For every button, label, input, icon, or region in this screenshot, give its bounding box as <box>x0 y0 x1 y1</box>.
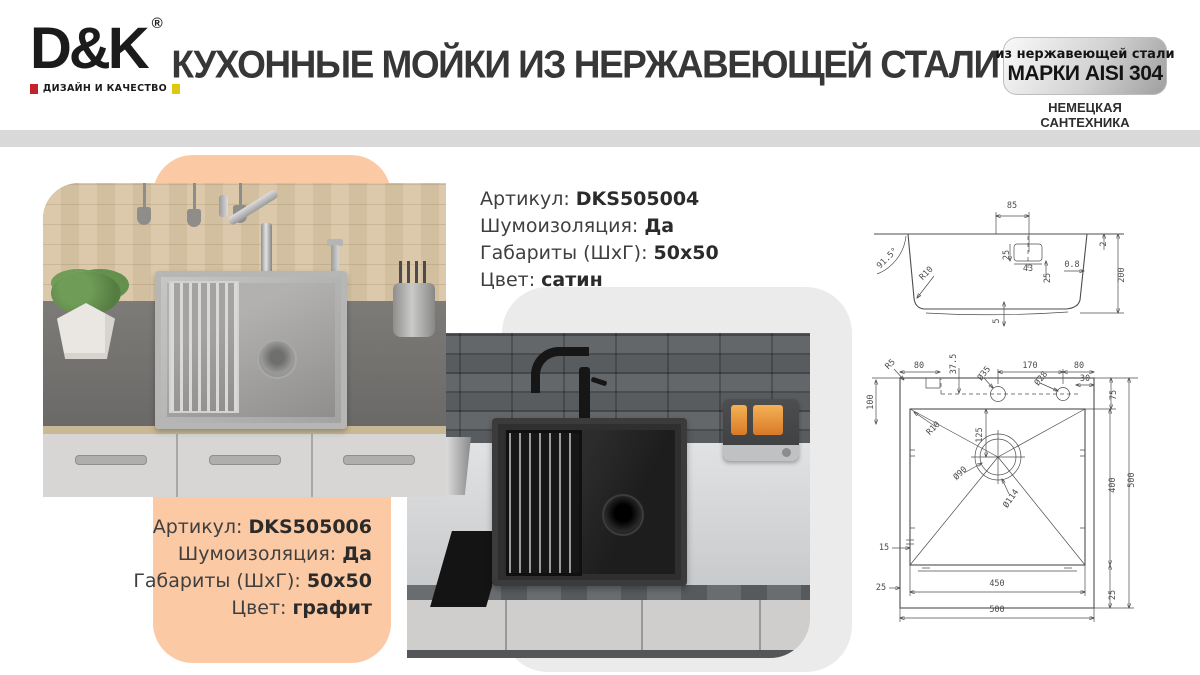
brand-logo: D&K® ДИЗАЙН И КАЧЕСТВО <box>30 20 180 94</box>
catalog-page: D&K® ДИЗАЙН И КАЧЕСТВО КУХОННЫЕ МОЙКИ ИЗ… <box>0 0 1200 675</box>
drawer-handle <box>343 455 415 465</box>
technical-drawing: 8591.5°R102543250.822005 R58037.5Ø35170Ø… <box>856 172 1178 644</box>
svg-text:5: 5 <box>992 318 1002 323</box>
soap-dispenser <box>331 245 339 273</box>
spec-row: Артикул: DKS505006 <box>130 514 372 541</box>
utensils <box>399 261 429 285</box>
svg-text:25: 25 <box>876 583 886 593</box>
toaster <box>723 399 799 461</box>
hanging-utensil <box>143 183 146 209</box>
spec-row: Шумоизоляция: Да <box>480 213 719 240</box>
stainless-sink <box>155 271 347 429</box>
sink-drain <box>257 339 297 379</box>
cabinet-fronts <box>407 600 810 650</box>
svg-text:R10: R10 <box>918 265 936 283</box>
svg-text:R5: R5 <box>883 357 897 371</box>
svg-text:0.8: 0.8 <box>1064 260 1079 270</box>
svg-text:85: 85 <box>1007 201 1017 211</box>
svg-text:500: 500 <box>1127 472 1137 487</box>
cabinet-seam <box>176 434 178 497</box>
side-view-dimension-labels: 8591.5°R102543250.822005 <box>875 201 1127 324</box>
svg-text:170: 170 <box>1022 361 1037 371</box>
svg-text:37.5: 37.5 <box>949 354 959 374</box>
svg-text:500: 500 <box>989 605 1004 615</box>
cabinet-seam <box>641 600 643 650</box>
dish-rack <box>169 281 239 413</box>
svg-text:30: 30 <box>1080 374 1090 384</box>
svg-text:25: 25 <box>1002 250 1012 260</box>
svg-text:Ø114: Ø114 <box>1001 487 1022 510</box>
cabinet-seam <box>505 600 507 650</box>
svg-text:25: 25 <box>1043 273 1053 283</box>
product-photo-satin-sink <box>43 183 446 497</box>
aisi-304-badge: из нержавеющей стали МАРКИ AISI 304 <box>1003 37 1167 95</box>
hanging-utensil <box>137 207 151 225</box>
spec-row: Габариты (ШхГ): 50х50 <box>480 240 719 267</box>
faucet-spout <box>219 195 228 217</box>
svg-text:80: 80 <box>914 361 924 371</box>
drawer-handle <box>75 455 147 465</box>
toaster-slot <box>753 405 783 435</box>
cabinet-seam <box>311 434 313 497</box>
svg-text:125: 125 <box>975 427 985 442</box>
faucet-body <box>261 223 272 275</box>
spec-row: Цвет: графит <box>130 595 372 622</box>
utensil-holder <box>393 283 435 337</box>
page-title: КУХОННЫЕ МОЙКИ ИЗ НЕРЖАВЕЮЩЕЙ СТАЛИ <box>170 43 1000 87</box>
side-section-view <box>874 212 1124 326</box>
svg-text:43: 43 <box>1023 264 1033 274</box>
black-faucet-body <box>579 367 590 423</box>
svg-text:Ø35: Ø35 <box>975 364 993 383</box>
toaster-slot <box>731 405 747 435</box>
svg-text:75: 75 <box>1109 390 1119 400</box>
toaster-knob <box>782 448 791 457</box>
svg-text:200: 200 <box>1117 267 1127 282</box>
cabinet-fronts <box>43 434 446 497</box>
sink-drain <box>602 494 644 536</box>
product-photo-graphite-sink <box>407 333 810 658</box>
svg-text:25: 25 <box>1108 590 1118 600</box>
registered-trademark-icon: ® <box>152 16 163 31</box>
svg-text:100: 100 <box>866 394 876 409</box>
svg-text:R10: R10 <box>925 420 943 438</box>
hanging-utensil <box>187 209 201 227</box>
logo-tagline: ДИЗАЙН И КАЧЕСТВО <box>30 83 180 94</box>
svg-text:80: 80 <box>1074 361 1084 371</box>
badge-line1: из нержавеющей стали <box>995 47 1174 62</box>
spec-row: Шумоизоляция: Да <box>130 541 372 568</box>
logo-tagline-text: ДИЗАЙН И КАЧЕСТВО <box>43 83 167 94</box>
toe-kick <box>407 650 810 658</box>
spec-row: Габариты (ШхГ): 50х50 <box>130 568 372 595</box>
svg-text:91.5°: 91.5° <box>875 246 900 271</box>
badge-line2: МАРКИ AISI 304 <box>1007 62 1162 86</box>
subtitle-line1: НЕМЕЦКАЯ САНТЕХНИКА <box>1003 101 1167 131</box>
spec-row: Артикул: DKS505004 <box>480 186 719 213</box>
svg-text:2: 2 <box>1099 241 1109 246</box>
red-bar-icon <box>30 84 38 94</box>
drawer-handle <box>209 455 281 465</box>
svg-text:450: 450 <box>989 579 1004 589</box>
header-divider <box>0 130 1200 147</box>
spec-row: Цвет: сатин <box>480 267 719 294</box>
svg-text:15: 15 <box>879 543 889 553</box>
graphite-sink <box>492 418 687 586</box>
plan-view <box>872 368 1138 622</box>
plan-view-dimension-labels: R58037.5Ø35170Ø28803010075R10125Ø90Ø1144… <box>866 354 1137 615</box>
dish-rack <box>506 430 582 576</box>
product-spec-dks505006: Артикул: DKS505006 Шумоизоляция: Да Габа… <box>130 514 372 622</box>
hanging-utensil <box>193 183 196 209</box>
svg-text:400: 400 <box>1108 477 1118 492</box>
product-spec-dks505004: Артикул: DKS505004 Шумоизоляция: Да Габа… <box>480 186 719 294</box>
cabinet-seam <box>759 600 761 650</box>
svg-text:Ø90: Ø90 <box>951 464 970 483</box>
logo-wordmark: D&K® <box>30 20 147 78</box>
